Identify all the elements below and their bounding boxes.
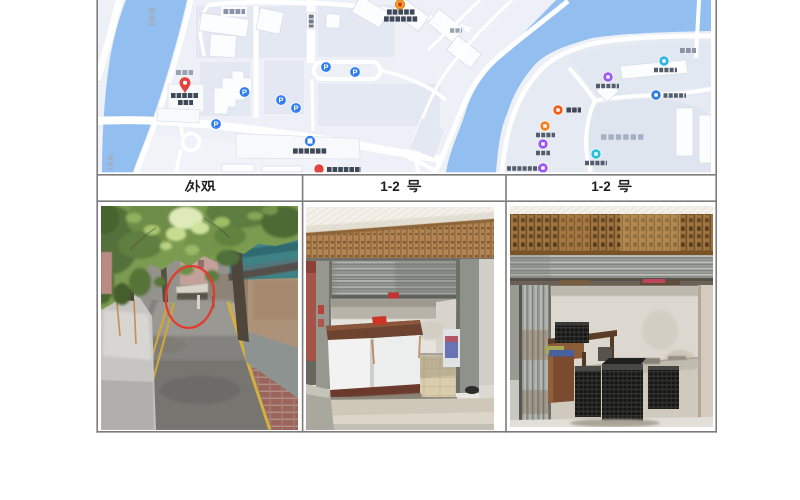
svg-text:P: P [352,68,357,77]
svg-text:P: P [293,104,298,113]
svg-text:P: P [213,120,218,129]
svg-text:P: P [323,63,328,72]
svg-text:P: P [242,88,247,97]
svg-text:1-2: 1-2 [380,179,400,194]
svg-text:1-2: 1-2 [591,179,611,194]
svg-text:P: P [278,96,283,105]
